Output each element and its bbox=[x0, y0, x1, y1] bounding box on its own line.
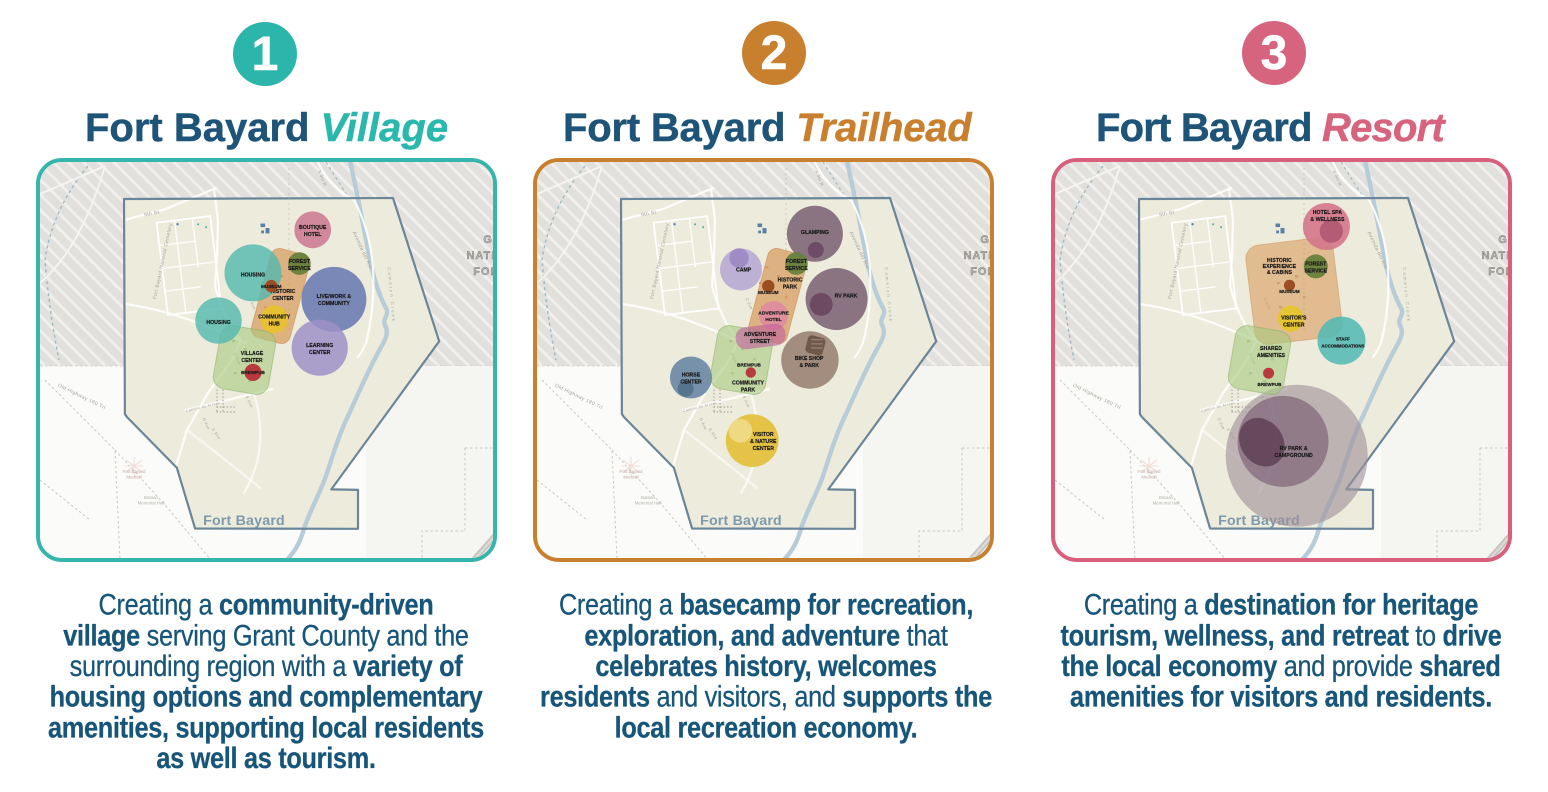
svg-text:LEARNINGCENTER: LEARNINGCENTER bbox=[306, 343, 333, 356]
svg-text:VISITOR& NATURECENTER: VISITOR& NATURECENTER bbox=[750, 432, 777, 452]
svg-text:GLAMPING: GLAMPING bbox=[801, 230, 829, 236]
svg-text:HISTORICEXPERIENCE& CABINS: HISTORICEXPERIENCE& CABINS bbox=[1263, 258, 1297, 276]
svg-text:HORSECENTER: HORSECENTER bbox=[680, 373, 702, 386]
svg-text:MUSEUM: MUSEUM bbox=[758, 290, 779, 295]
svg-text:RV PARK: RV PARK bbox=[835, 294, 858, 300]
svg-text:MUSEUM: MUSEUM bbox=[261, 284, 282, 289]
svg-text:VILLAGECENTER: VILLAGECENTER bbox=[241, 351, 264, 364]
svg-text:VISITOR'SCENTER: VISITOR'SCENTER bbox=[1281, 316, 1307, 329]
svg-text:FORESTSERVICE: FORESTSERVICE bbox=[288, 259, 311, 272]
svg-text:MUSEUM: MUSEUM bbox=[1279, 289, 1300, 294]
svg-text:SHAREDAMENITIES: SHAREDAMENITIES bbox=[1257, 346, 1286, 359]
svg-text:FORESTSERVICE: FORESTSERVICE bbox=[1304, 262, 1327, 275]
svg-text:HOUSING: HOUSING bbox=[206, 320, 230, 326]
svg-text:HOTEL SPA& WELLNESS: HOTEL SPA& WELLNESS bbox=[1310, 210, 1345, 223]
svg-text:BREWPUB: BREWPUB bbox=[737, 363, 761, 368]
svg-text:CAMP: CAMP bbox=[736, 268, 752, 274]
svg-text:BREWPUB: BREWPUB bbox=[241, 370, 265, 375]
svg-text:LIVE/WORK &COMMUNITY: LIVE/WORK &COMMUNITY bbox=[317, 294, 352, 307]
svg-text:RV PARK &CAMPGROUND: RV PARK &CAMPGROUND bbox=[1274, 446, 1313, 459]
svg-text:FORESTSERVICE: FORESTSERVICE bbox=[785, 259, 808, 272]
svg-text:HOUSING: HOUSING bbox=[241, 273, 265, 279]
svg-text:BREWPUB: BREWPUB bbox=[1258, 382, 1282, 387]
